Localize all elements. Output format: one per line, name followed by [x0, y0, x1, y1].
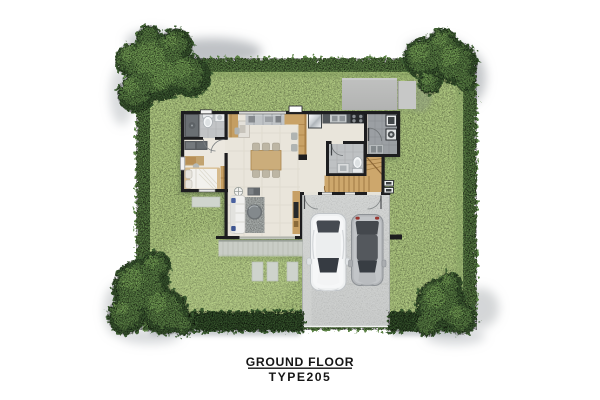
svg-text:TYPE205: TYPE205: [269, 370, 332, 384]
svg-text:GROUND FLOOR: GROUND FLOOR: [246, 355, 355, 369]
